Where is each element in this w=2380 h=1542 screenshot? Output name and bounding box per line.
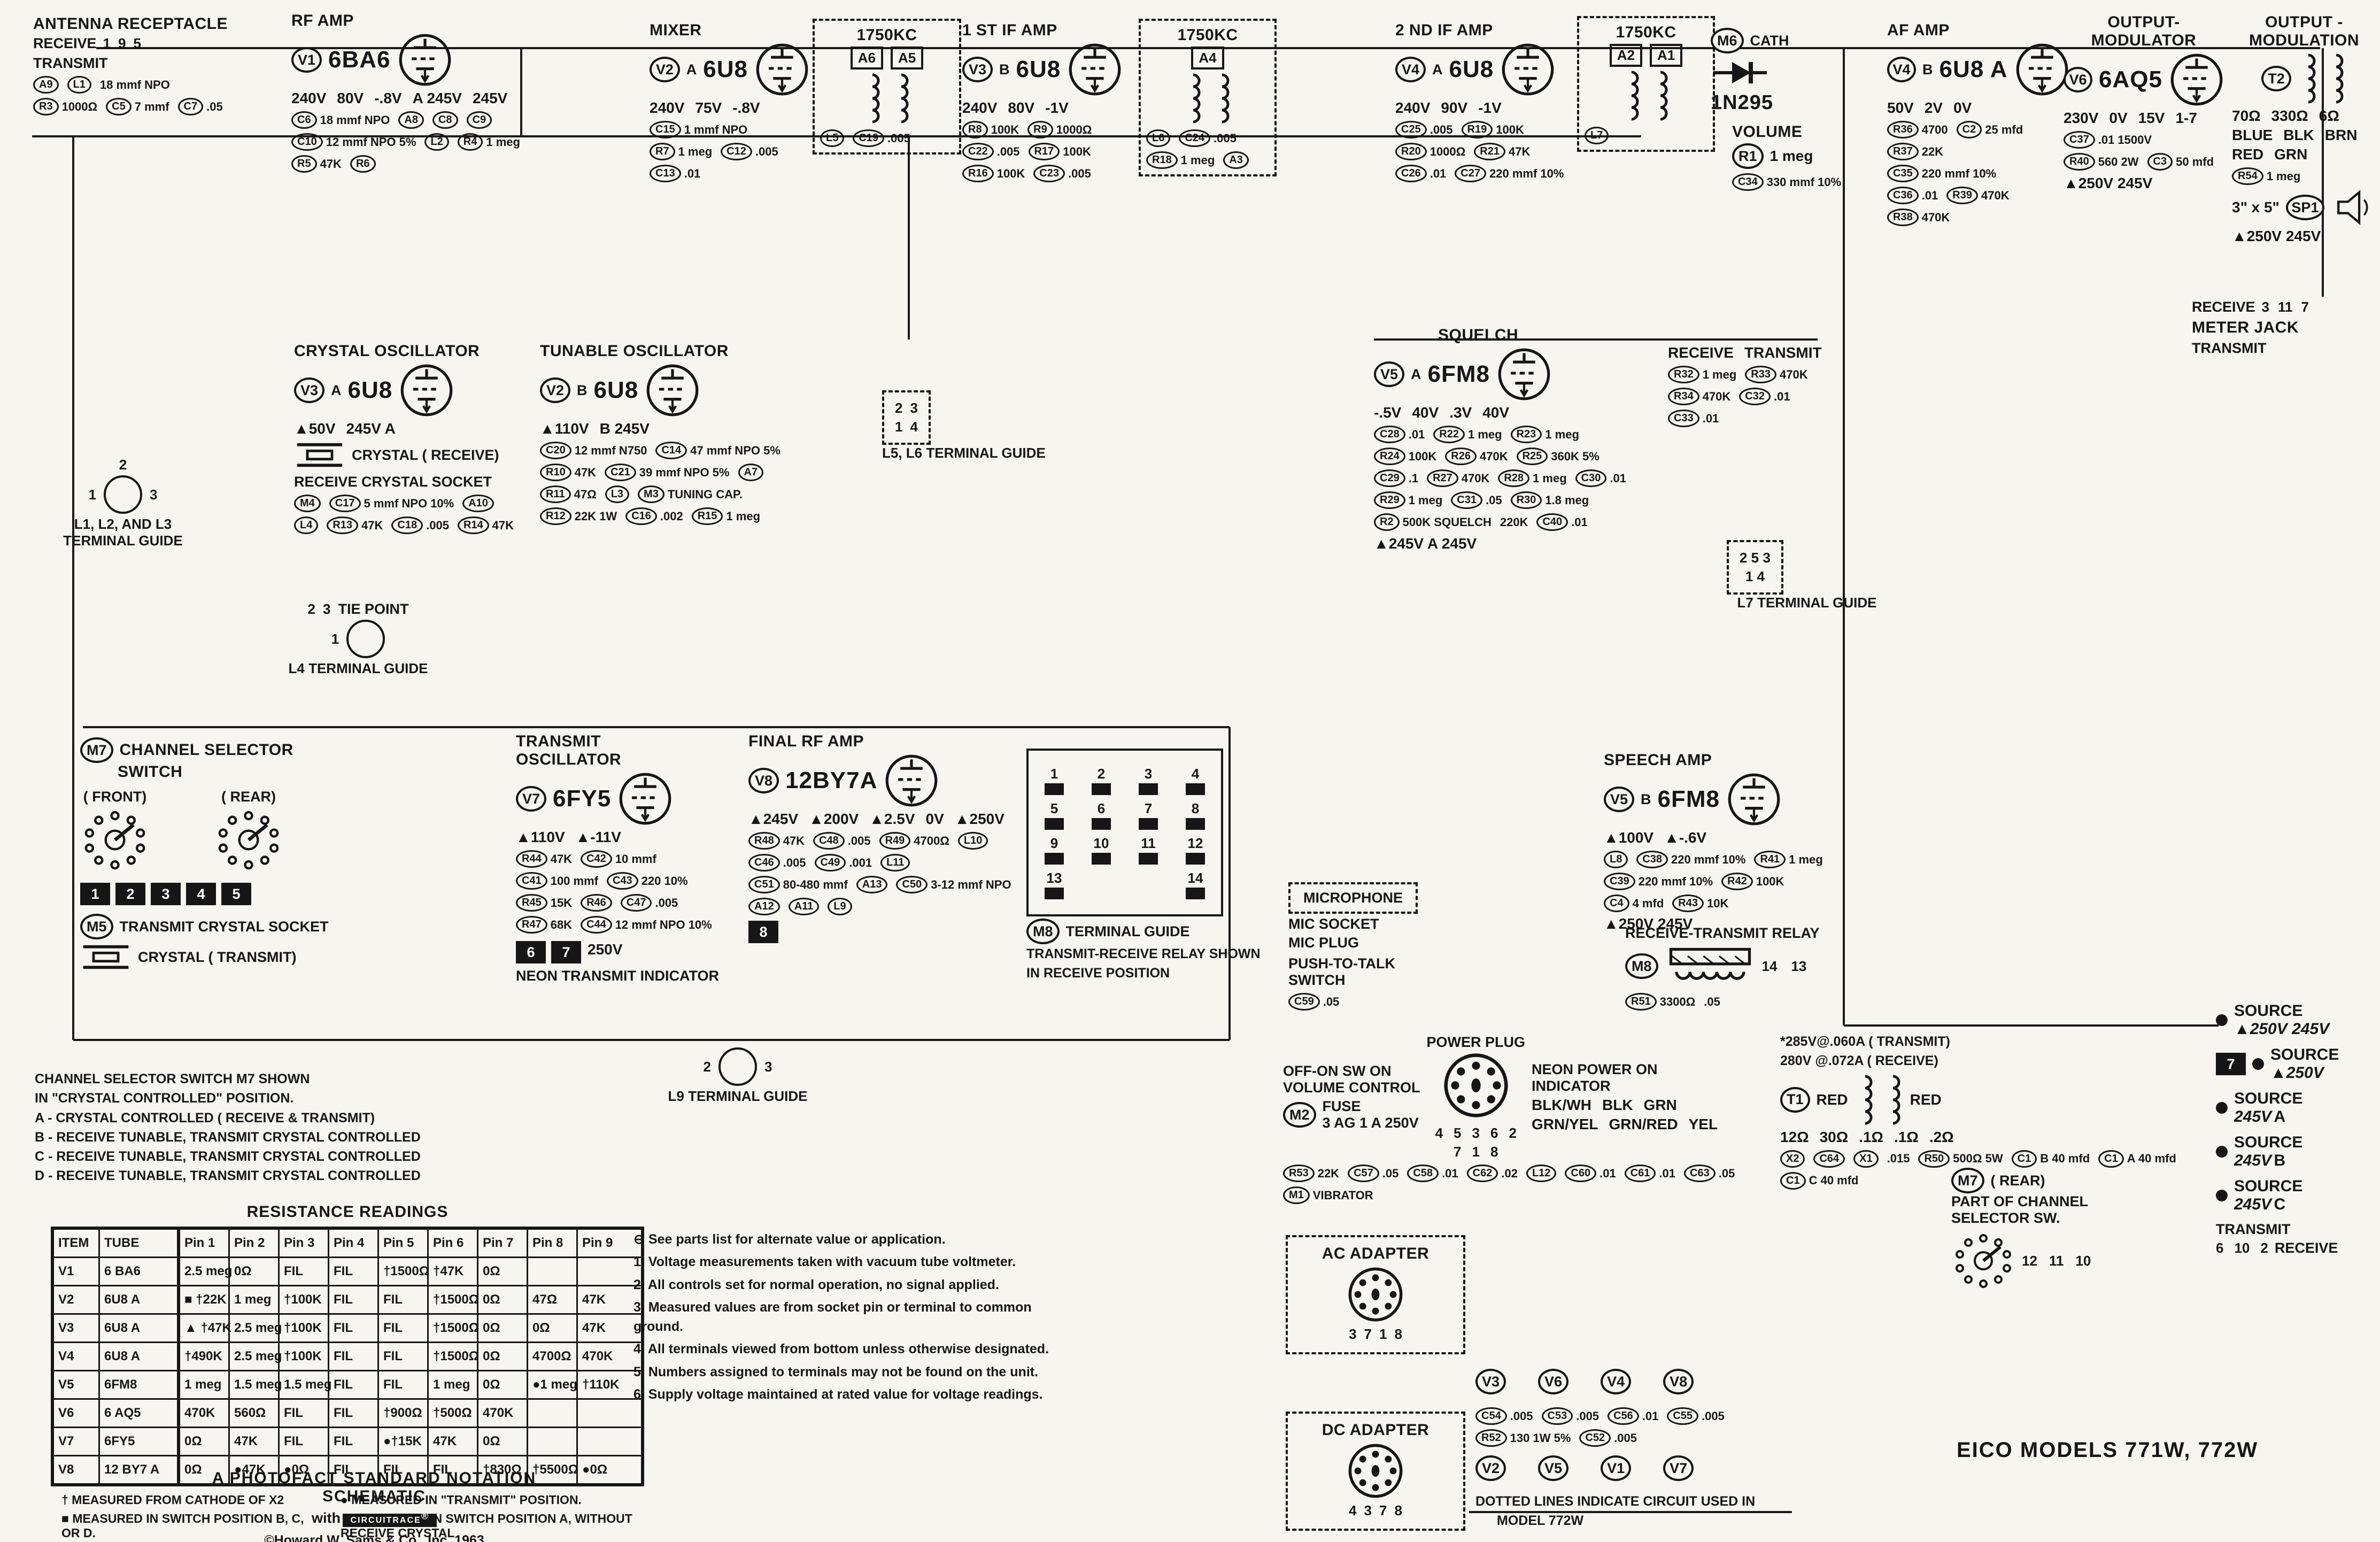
component: R221 meg (1433, 426, 1502, 443)
component-ref: M3 (638, 485, 664, 503)
component: C1B 40 mfd (2012, 1150, 2090, 1168)
component: R27470K (1427, 469, 1489, 487)
component-value: 3-12 mmf NPO (931, 878, 1011, 892)
component-value: 470K (1462, 472, 1490, 485)
terminal-dot-icon (2216, 1102, 2228, 1114)
component-value: 10 mmf (615, 852, 656, 866)
cell-pin (528, 1400, 578, 1427)
component-value: .1 (1409, 472, 1418, 485)
selector-ref: M7 (1951, 1168, 1984, 1193)
cell-pin (578, 1258, 628, 1285)
circuitrace-tag: 3 (151, 883, 181, 905)
source-terminals: SOURCE ▲250V 245V 7 SOURCE ▲250V SOURCE … (2216, 994, 2376, 1256)
component: A8 (398, 111, 424, 129)
component-value: 39 mmf NPO 5% (639, 466, 730, 480)
component-value: 12 mmf NPO 10% (615, 918, 712, 932)
if-can-2: 1750KC A4 L6C24.005R181 megA3 (1139, 19, 1277, 176)
component: R41 meg (458, 133, 520, 151)
component: C38220 mmf 10% (1636, 851, 1745, 868)
circuitrace-tags: 8 (748, 921, 1016, 943)
component-value: .005 (1430, 123, 1453, 137)
terminal-grid-row: 13 14 (1042, 870, 1207, 899)
plug-pin: 6 (1490, 1125, 1498, 1142)
component: R1222K 1W (540, 507, 617, 525)
if-can-3: 1750KC A2A1 L7 (1577, 16, 1715, 152)
tube-ref: V3 (962, 57, 993, 82)
component-value: 1 meg (1789, 853, 1823, 867)
component: A11 (789, 898, 820, 915)
component-value: 15K (551, 896, 572, 910)
component-ref: R20 (1395, 143, 1427, 160)
component-ref: R34 (1668, 388, 1699, 405)
terminal-dot-icon (2216, 1146, 2228, 1158)
component: C16.002 (625, 507, 683, 525)
ac-adapter-section: AC ADAPTER 3718 (1286, 1235, 1465, 1354)
component-ref: R23 (1511, 426, 1542, 443)
voltage: ▲50V (294, 420, 336, 437)
relay-contact-label: RECEIVE (1668, 344, 1734, 361)
tube-icon (1500, 42, 1556, 97)
photofact-line: A PHOTOFACT STANDARD NOTATION SCHEMATIC (171, 1469, 577, 1506)
component-value: 220 mmf 10% (1639, 875, 1713, 889)
wire-color: YEL (1689, 1116, 1718, 1133)
component-value: .005 (1702, 1409, 1725, 1423)
component: X1 (1853, 1150, 1878, 1168)
meter-jack-section: RECEIVE 3117 METER JACK TRANSMIT (2192, 297, 2368, 357)
cell-tube: 6U8 A (100, 1343, 180, 1370)
cell-pin: FIL (329, 1371, 379, 1398)
component-value: 1 meg (1545, 428, 1579, 442)
voltage: -1V (1045, 99, 1069, 117)
component-ref: R12 (540, 507, 571, 525)
adapter-pin: 1 (1379, 1326, 1387, 1343)
voltages: ▲110V▲-11V (516, 829, 730, 846)
component-ref: C39 (1604, 873, 1635, 890)
component-value: 1 meg (678, 145, 713, 159)
component: C25.005 (1395, 121, 1453, 138)
volume-label: VOLUME (1732, 123, 1860, 141)
diode-type: 1N295 (1711, 91, 1823, 114)
tube-suffix: A (686, 61, 697, 78)
microphone-label: MICROPHONE (1303, 890, 1403, 906)
plug-pin: 2 (1509, 1125, 1516, 1142)
stage-role: 1 ST IF AMP (962, 21, 1128, 40)
component-value: 47K (1509, 145, 1530, 159)
component: C503-12 mmf NPO (896, 876, 1011, 893)
if-can-1: 1750KC A6A5 L5C19.005 (813, 19, 961, 155)
voltages: ▲110VB 245V (540, 420, 781, 437)
off-on-switch-label2: VOLUME CONTROL (1283, 1080, 1420, 1096)
component: C8 (432, 111, 458, 129)
neon-power-label2: INDICATOR (1532, 1078, 1753, 1094)
source-label: SOURCE (2234, 1090, 2302, 1107)
component-value: .02 (1501, 1167, 1518, 1181)
cell-tube: 6 AQ5 (100, 1400, 180, 1427)
squelch-stage: SQUELCH V5 A 6FM8 -.5V40V.3V40V C28.01R2… (1374, 326, 1641, 552)
power-supply-section: OFF-ON SW ON VOLUME CONTROL M2 FUSE 3 AG… (1283, 1032, 1753, 1204)
guide-title: L4 TERMINAL GUIDE (278, 660, 438, 677)
cell-tube: 6U8 A (100, 1286, 180, 1313)
terminal-grid-row: 1 2 3 4 (1042, 766, 1207, 795)
alignment-boxes: A4 (1146, 47, 1269, 70)
socket-ref: M5 (80, 914, 113, 939)
component-ref: L9 (828, 898, 852, 915)
mic-plug-label: MIC PLUG (1288, 935, 1359, 951)
component: M4 (294, 495, 321, 512)
source-voltage: ▲250V 245V (2234, 1020, 2329, 1038)
component: C618 mmf NPO (291, 111, 390, 129)
component-value: 68K (551, 918, 572, 932)
crystal-oscillator-stage: CRYSTAL OSCILLATOR V3 A 6U8 ▲50V245V A C… (294, 342, 519, 534)
cathode-label: CATH (1750, 33, 1789, 49)
component-value: 18 mmf NPO (320, 113, 390, 127)
tube-ref: V1 (1601, 1455, 1631, 1481)
tube-ref: V6 (2064, 67, 2092, 92)
speech-amp-stage: SPEECH AMP V5 B 6FM8 ▲100V▲-.6V L8C38220… (1604, 751, 1850, 932)
voltages: 240V80V-1V (962, 99, 1128, 117)
component-ref: R47 (516, 916, 547, 934)
component-ref: R44 (516, 850, 547, 868)
plug-pin: 3 (1472, 1125, 1480, 1142)
component-ref: C18 (391, 516, 423, 534)
voltages: 230V0V15V1-7 (2064, 110, 2224, 127)
component-value: 1 meg (1533, 472, 1567, 485)
cell-pin: †500Ω (429, 1400, 478, 1427)
adapter-pin: 3 (1364, 1502, 1372, 1519)
voltage: 75V (695, 99, 722, 117)
component: R17100K (1029, 143, 1091, 160)
component: R4515K (516, 894, 572, 912)
component-value: .005 (848, 834, 871, 848)
note-line: ⊖ See parts list for alternate value or … (633, 1230, 1061, 1249)
tube-ref: V2 (540, 377, 570, 403)
voltage: ▲-.6V (1664, 829, 1706, 846)
table-row: V7 6FY5 0Ω47KFILFIL●†15K47K0Ω (54, 1428, 641, 1456)
output-modulator-stage: OUTPUT- MODULATOR V6 6AQ5 230V0V15V1-7 C… (2064, 13, 2224, 192)
component-ref: C9 (467, 111, 492, 129)
circuitrace-tag: 4 (186, 883, 216, 905)
avc-relay-section: RECEIVETRANSMIT R321 megR33470KR34470KC3… (1668, 342, 1844, 427)
component-value: 47Ω (574, 488, 597, 502)
component-ref: R3 (33, 98, 59, 115)
component-value: .05 (1704, 995, 1720, 1009)
component: C61.01 (1625, 1165, 1675, 1182)
component-ref: R39 (1946, 187, 1978, 204)
component-value: 330 mmf 10% (1767, 175, 1841, 189)
tube-suffix: B (999, 61, 1010, 78)
speaker-icon (2331, 187, 2376, 228)
relay-guide-note2: IN RECEIVE POSITION (1026, 963, 1251, 983)
wire-color2: RED (1910, 1091, 1942, 1108)
components: C37.01 1500VR40560 2WC350 mfd (2064, 131, 2224, 171)
component: L11 (880, 854, 910, 872)
terminal-cell: 8 (1184, 800, 1207, 830)
terminal-number: 8 (1192, 800, 1199, 817)
component-ref: R19 (1462, 121, 1493, 138)
component-ref: R7 (650, 143, 675, 160)
component-ref: L11 (880, 854, 910, 872)
source-label: SOURCE (2270, 1046, 2339, 1063)
component-value: .05 (1486, 494, 1502, 507)
component-ref: C31 (1451, 491, 1482, 509)
tube-suffix: B (1922, 61, 1933, 78)
if-frequency: 1750KC (1146, 26, 1269, 44)
note-line: 3. Measured values are from socket pin o… (633, 1298, 1061, 1337)
tube-icon (2169, 52, 2224, 107)
af-amp-stage: AF AMP V4 B 6U8 A 50V2V0V R364700C225 mf… (1887, 21, 2047, 226)
adapter-pins: 4378 (1295, 1502, 1456, 1519)
cell-tube: 6FM8 (100, 1371, 180, 1398)
component-value: 12 mmf NPO 5% (326, 135, 416, 149)
selector-pins: 121110 (2022, 1253, 2091, 1269)
stage-role: FINAL RF AMP (748, 733, 1016, 751)
supply-voltage: 250V (588, 941, 622, 958)
tube-ref: V5 (1538, 1455, 1568, 1481)
component: C47.005 (621, 894, 678, 912)
components: C54.005C53.005C56.01C55.005R52130 1W 5%C… (1475, 1407, 1828, 1447)
component-value: 80-480 mmf (783, 878, 848, 892)
component-value: 100K (997, 167, 1025, 181)
component: C54.005 (1475, 1407, 1533, 1425)
neon-power-label: NEON POWER ON (1532, 1061, 1753, 1078)
component-value: 3300Ω (1660, 995, 1696, 1009)
cell-pin: FIL (379, 1343, 429, 1370)
channel-selector-notes: CHANNEL SELECTOR SWITCH M7 SHOWN IN "CRY… (35, 1069, 441, 1186)
component-ref: R43 (1672, 895, 1704, 912)
stage-role2: MODULATOR (2064, 32, 2224, 50)
source-label: SOURCE (2234, 1134, 2302, 1151)
selector-pin: 12 (2022, 1253, 2037, 1269)
cell-pin: FIL (379, 1286, 429, 1313)
terminal-cell: 7 (1137, 800, 1160, 830)
component: 220K (1500, 513, 1528, 531)
component: C33.01 (1668, 410, 1719, 427)
tube-ref: V6 (1538, 1369, 1568, 1394)
terminal-cell: 9 (1042, 835, 1066, 865)
cell-pin: FIL (379, 1315, 429, 1341)
component-value: 220 10% (642, 874, 688, 888)
component: C175 mmf NPO 10% (329, 495, 454, 512)
component: C40.01 (1536, 513, 1587, 531)
fuse-label: FUSE (1323, 1098, 1361, 1114)
component-ref: C20 (540, 442, 571, 459)
voltage: 245V A (346, 420, 396, 437)
switch-pin: 6 (2216, 1240, 2223, 1256)
cell-pin: 1.5 meg (280, 1371, 329, 1398)
cell-pin: 2.5 meg (180, 1258, 230, 1285)
components: L8C38220 mmf 10%R411 megC39220 mmf 10%R4… (1604, 851, 1850, 912)
alignment-boxes: A2A1 (1585, 44, 1707, 67)
wire-color: BLUE (2232, 127, 2273, 144)
component-ref: C8 (432, 111, 458, 129)
tube-ref: V1 (291, 47, 322, 73)
branding-section: A PHOTOFACT STANDARD NOTATION SCHEMATIC … (171, 1469, 577, 1542)
neon-transmit-indicator-label: NEON TRANSMIT INDICATOR (516, 968, 730, 984)
channel-note-line: C - RECEIVE TUNABLE, TRANSMIT CRYSTAL CO… (35, 1147, 441, 1166)
component-value: .05 (1323, 995, 1340, 1009)
component-ref: R50 (1918, 1150, 1950, 1168)
plug-pin: 7 (1454, 1144, 1461, 1160)
component-value: 1.8 meg (1545, 494, 1589, 507)
component-ref: X2 (1780, 1150, 1805, 1168)
voltages: ▲245V▲200V▲2.5V0V▲250V (748, 811, 1016, 828)
component-value: .005 (655, 896, 678, 910)
components: C59.05 (1288, 993, 1513, 1011)
component-value: VIBRATOR (1313, 1189, 1373, 1202)
terminal-dot-icon (2252, 1058, 2264, 1070)
source-row: SOURCE ▲250V 245V (2216, 1002, 2376, 1038)
component-ref: C36 (1887, 187, 1919, 204)
component: A10 (462, 495, 494, 512)
component: R25360K 5% (1517, 448, 1599, 465)
component: C32.01 (1739, 388, 1790, 405)
component-value: .01 (1774, 390, 1790, 404)
component: R1147Ω (540, 485, 597, 503)
component-ref: L5 (820, 129, 844, 147)
if-frequency: 1750KC (1585, 24, 1707, 42)
component-value: 470K (1780, 368, 1808, 382)
voltage: 80V (337, 90, 364, 107)
detector-section: M6 CATH 1N295 (1711, 26, 1823, 114)
component: C39220 mmf 10% (1604, 873, 1713, 890)
cell-pin: 1 meg (230, 1286, 280, 1313)
component-value: .01 (1430, 167, 1447, 181)
cell-pin: 470K (478, 1400, 528, 1427)
voltage: -1V (1478, 99, 1502, 117)
cell-pin: FIL (379, 1371, 429, 1398)
terminal-cell: 12 (1184, 835, 1207, 865)
voltage: 0V (1953, 99, 1972, 117)
note-line: 1. Voltage measurements taken with vacuu… (633, 1252, 1061, 1271)
note-line: 5. Numbers assigned to terminals may not… (633, 1362, 1061, 1382)
voltage: 90V (1441, 99, 1467, 117)
component-value: .01 1500V (2098, 133, 2152, 147)
component: C55.005 (1667, 1407, 1725, 1425)
component: A7 (738, 464, 764, 481)
cell-pin: †47K (429, 1258, 478, 1285)
cell-pin: †110K (578, 1371, 628, 1398)
component-value: B 40 mfd (2040, 1152, 2090, 1166)
component: 18 mmf NPO (100, 76, 170, 94)
component-ref: R2 (1374, 513, 1400, 531)
guide-pin2: 3 (764, 1059, 772, 1075)
wire-color: BLK (1602, 1097, 1633, 1114)
component: C41100 mmf (516, 872, 598, 890)
cell-pin: †100K (280, 1286, 329, 1313)
adapter-pin: 8 (1394, 1502, 1402, 1519)
component-ref: C63 (1684, 1165, 1716, 1182)
component-ref: R10 (540, 464, 571, 481)
component: R1047K (540, 464, 596, 481)
component-ref: C54 (1475, 1407, 1507, 1425)
voltage: 40V (1412, 404, 1439, 421)
component-ref: C51 (748, 876, 780, 893)
guide-pin-left: 1 (89, 487, 96, 503)
tap-value: 70Ω (2232, 107, 2261, 125)
tube-icon (617, 771, 673, 827)
voltage: 230V (2064, 110, 2098, 127)
cell-pin: 0Ω (478, 1428, 528, 1455)
coil-icon (2298, 52, 2319, 105)
voltage: 245V (473, 90, 507, 107)
source-voltage: 245V (2234, 1196, 2271, 1213)
voltages: 240V80V-.8VA 245V245V (291, 90, 527, 107)
component-ref: C47 (621, 894, 652, 912)
fuse-rating: 3 AG 1 A 250V (1323, 1115, 1419, 1131)
component-value: 1 meg (1409, 494, 1443, 507)
components: C25.005R19100KR201000ΩR2147KC26.01C27220… (1395, 121, 1566, 182)
component: C37.01 1500V (2064, 131, 2152, 149)
component: C151 mmf NPO (650, 121, 747, 138)
component: R24100K (1374, 448, 1436, 465)
cell-pin: †1500Ω (429, 1286, 478, 1313)
power-plug-icon (1441, 1051, 1511, 1120)
cell-tube: 6U8 A (100, 1315, 180, 1341)
front-wafer-label: ( FRONT) (80, 789, 150, 805)
component-value: 100K (1063, 145, 1091, 159)
components: C28.01R221 megR231 megR24100KR26470KR253… (1374, 426, 1641, 531)
ptt-label2: SWITCH (1288, 972, 1513, 989)
supply-voltage-note: ▲250V 245V (2232, 228, 2376, 245)
header-pin: Pin 9 (578, 1230, 628, 1256)
alignment-box: A1 (1650, 44, 1682, 67)
adapter-pin: 8 (1394, 1326, 1402, 1343)
switch-pins: 6102 (2216, 1240, 2268, 1256)
component-ref: C1 (2098, 1150, 2124, 1168)
component-ref: C52 (1579, 1429, 1611, 1447)
voltage: ▲245V (748, 811, 798, 828)
component-value: 500Ω 5W (1953, 1152, 2003, 1166)
rear-label: ( REAR) (1991, 1173, 2045, 1189)
tube-type: 6BA6 (328, 47, 391, 73)
guide-title: L5, L6 TERMINAL GUIDE (882, 445, 1032, 461)
component-ref: C61 (1625, 1165, 1656, 1182)
wire-color: GRN/YEL (1532, 1116, 1598, 1133)
component-ref: R6 (350, 155, 376, 173)
cell-item: V2 (54, 1286, 100, 1313)
terminal-cell: 11 (1137, 835, 1160, 865)
header-pin: Pin 7 (478, 1230, 528, 1256)
component-value: .005 (755, 145, 778, 159)
terminal-number: 2 (1098, 766, 1105, 782)
component-ref: C25 (1395, 121, 1427, 138)
component-value: 100K (991, 123, 1019, 137)
tap-value: 12Ω (1780, 1129, 1809, 1146)
rotary-switch-icon (80, 805, 150, 875)
component-value: 1000Ω (1430, 145, 1466, 159)
voltage: 80V (1008, 99, 1034, 117)
circuitrace-tag: 8 (748, 921, 778, 943)
component: R541 meg (2232, 167, 2300, 185)
if-frequency: 1750KC (820, 26, 954, 44)
cell-pin: FIL (280, 1258, 329, 1285)
component: R26470K (1445, 448, 1508, 465)
component: R33470K (1745, 366, 1807, 383)
component-value: 22K 1W (575, 510, 617, 523)
terminal-guide-l4: 2 3 TIE POINT 1 L4 TERMINAL GUIDE (278, 599, 438, 677)
component: R201000Ω (1395, 143, 1465, 160)
wire-color: RED (1817, 1091, 1848, 1108)
component: L3 (605, 485, 629, 503)
component-ref: C4 (1604, 895, 1629, 912)
jack-pin: 11 (2278, 299, 2293, 315)
diode-icon (1711, 57, 1769, 89)
voltages: 240V90V-1V (1395, 99, 1566, 117)
tube-icon (754, 42, 810, 97)
component-ref: C58 (1407, 1165, 1439, 1182)
component: C2139 mmf NPO 5% (605, 464, 729, 481)
channel-note-line: A - CRYSTAL CONTROLLED ( RECEIVE & TRANS… (35, 1108, 441, 1128)
